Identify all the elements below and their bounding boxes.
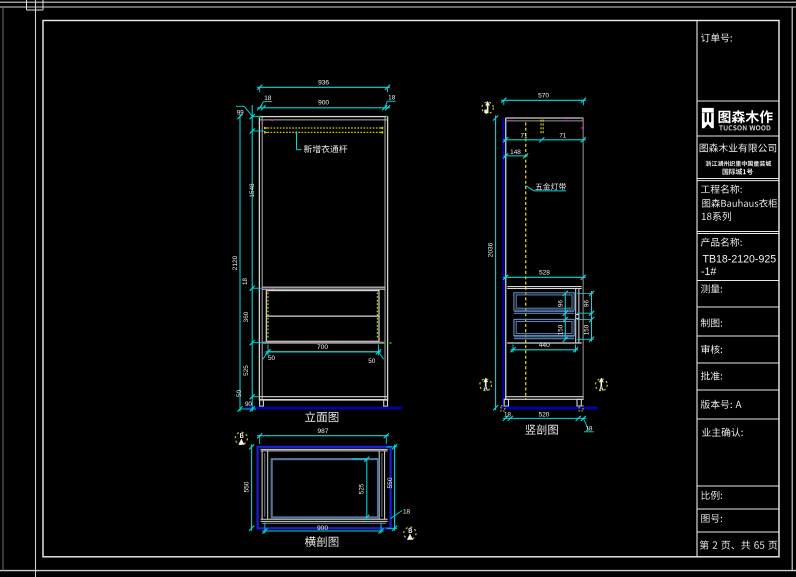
- svg-text:71: 71: [521, 132, 528, 139]
- svg-text:150: 150: [557, 324, 564, 335]
- svg-text:900: 900: [317, 525, 328, 532]
- svg-text:18: 18: [264, 95, 272, 102]
- svg-text:50: 50: [368, 358, 376, 365]
- svg-text:90: 90: [245, 401, 252, 408]
- svg-text:18: 18: [388, 95, 396, 102]
- svg-text:550: 550: [387, 477, 394, 488]
- svg-text:900: 900: [318, 100, 329, 107]
- svg-text:96: 96: [557, 300, 564, 307]
- svg-text:71: 71: [559, 132, 566, 139]
- svg-text:550: 550: [244, 481, 251, 492]
- svg-text:18: 18: [585, 426, 593, 433]
- svg-text:525: 525: [359, 483, 366, 494]
- svg-text:18: 18: [504, 412, 511, 419]
- svg-text:18: 18: [242, 278, 249, 285]
- svg-text:360: 360: [243, 311, 250, 322]
- svg-text:50: 50: [268, 355, 276, 362]
- svg-text:700: 700: [317, 344, 328, 351]
- svg-text:440: 440: [539, 342, 550, 349]
- svg-text:-1#: -1#: [701, 266, 716, 278]
- svg-text:936: 936: [318, 79, 329, 86]
- svg-text:150: 150: [584, 324, 591, 335]
- svg-text:570: 570: [538, 92, 549, 99]
- svg-text:50: 50: [236, 390, 243, 397]
- svg-text:18: 18: [403, 509, 411, 516]
- svg-text:528: 528: [539, 269, 550, 276]
- svg-text:148: 148: [510, 149, 521, 156]
- svg-text:1548: 1548: [249, 183, 256, 198]
- svg-text:TB18-2120-925: TB18-2120-925: [703, 253, 777, 265]
- svg-text:525: 525: [243, 365, 250, 376]
- svg-text:2036: 2036: [488, 242, 495, 257]
- svg-text:520: 520: [539, 412, 550, 419]
- svg-text:2120: 2120: [232, 255, 239, 270]
- svg-text:99: 99: [237, 110, 244, 117]
- svg-text:96: 96: [584, 300, 591, 307]
- svg-text:987: 987: [317, 428, 328, 435]
